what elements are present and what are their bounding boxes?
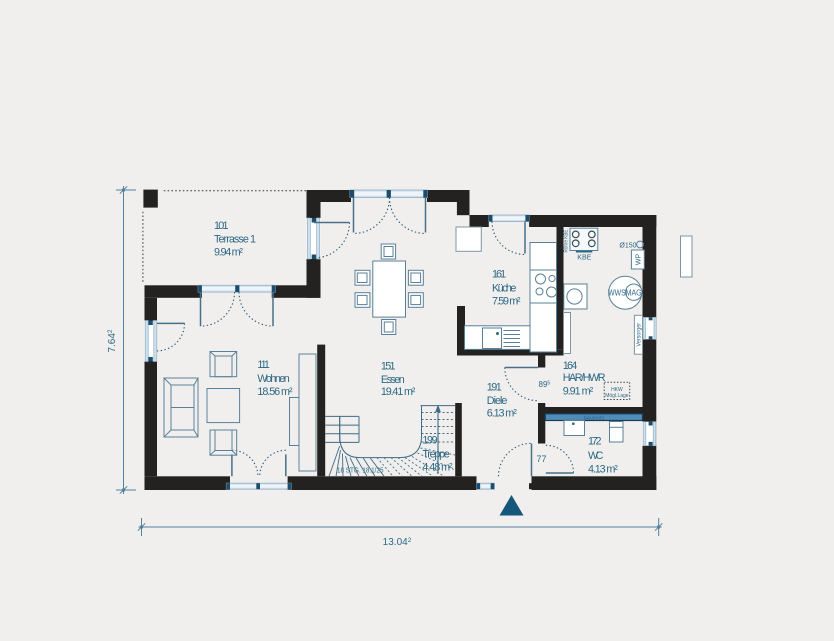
svg-text:6.13 m²: 6.13 m² [487, 408, 517, 420]
svg-text:9.91 m²: 9.91 m² [563, 386, 594, 398]
svg-text:111: 111 [257, 359, 270, 371]
svg-text:Ø150: Ø150 [619, 243, 636, 250]
svg-text:MAG: MAG [626, 289, 642, 298]
svg-text:KBE: KBE [577, 254, 591, 261]
svg-text:Treppe: Treppe [422, 449, 449, 461]
svg-text:Küche: Küche [492, 283, 516, 295]
svg-text:Versorger: Versorger [637, 323, 643, 347]
svg-text:Diele: Diele [487, 395, 508, 407]
svg-text:9.94 m²: 9.94 m² [214, 247, 243, 259]
svg-text:bauseits: bauseits [584, 415, 605, 421]
svg-text:7.59 m²: 7.59 m² [492, 295, 521, 307]
svg-text:161: 161 [492, 268, 506, 280]
svg-text:77: 77 [537, 454, 547, 464]
svg-text:Essen: Essen [381, 374, 405, 386]
svg-text:18 STG. 18.1/25: 18 STG. 18.1/25 [337, 468, 384, 475]
svg-text:101: 101 [214, 220, 229, 232]
svg-text:HAR/HWR: HAR/HWR [563, 372, 606, 384]
svg-text:Wohnen: Wohnen [257, 373, 289, 385]
svg-text:13.042: 13.042 [383, 537, 412, 548]
svg-text:Terrasse 1: Terrasse 1 [214, 233, 256, 245]
svg-text:19.41 m²: 19.41 m² [381, 386, 416, 398]
svg-text:4.48 m²: 4.48 m² [422, 462, 453, 474]
svg-text:191: 191 [487, 381, 502, 393]
svg-text:151: 151 [381, 360, 396, 372]
svg-text:WC: WC [588, 450, 604, 462]
svg-text:WWS: WWS [608, 289, 626, 298]
svg-text:Röhre KBE: Röhre KBE [563, 229, 569, 252]
svg-text:4.13 m²: 4.13 m² [588, 464, 618, 476]
svg-text:164: 164 [563, 360, 578, 372]
svg-text:Mögl.Lage: Mögl.Lage [605, 393, 629, 399]
svg-text:18.56 m²: 18.56 m² [257, 386, 293, 398]
svg-text:172: 172 [588, 436, 602, 448]
svg-text:WP: WP [635, 254, 642, 266]
svg-text:199: 199 [422, 435, 437, 447]
